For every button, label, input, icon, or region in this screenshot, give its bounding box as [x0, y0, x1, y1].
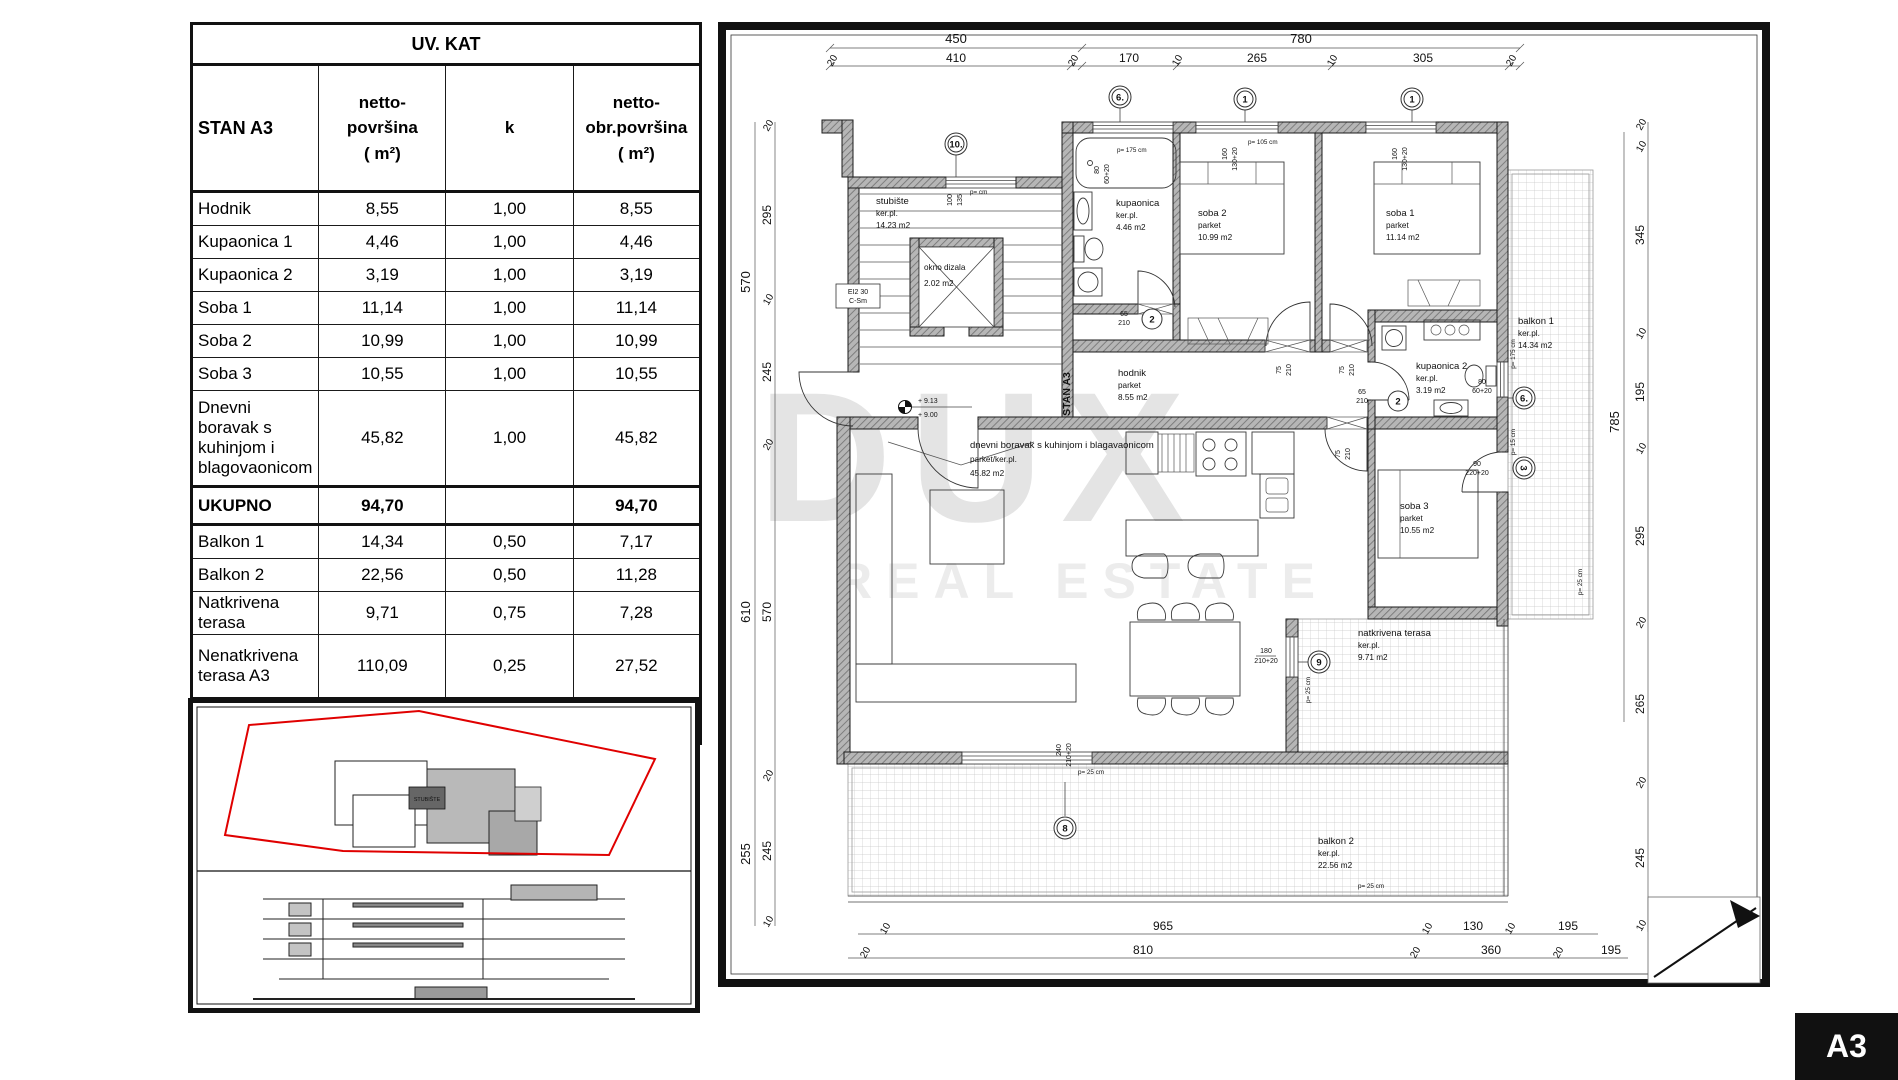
- svg-text:8: 8: [1062, 824, 1067, 835]
- svg-text:65: 65: [1120, 311, 1128, 318]
- table-row: Dnevni boravak s kuhinjom i blagovaonico…: [192, 391, 701, 487]
- svg-text:305: 305: [1413, 51, 1433, 65]
- svg-text:210: 210: [1345, 448, 1352, 460]
- svg-text:+ 9.13: + 9.13: [918, 398, 938, 405]
- table-row: Hodnik8,551,008,55: [192, 192, 701, 226]
- svg-text:295: 295: [1633, 526, 1647, 546]
- svg-text:6.: 6.: [1116, 93, 1124, 104]
- svg-text:265: 265: [1247, 51, 1267, 65]
- svg-text:p= 25 cm: p= 25 cm: [1577, 569, 1584, 595]
- table-row: Natkrivena terasa9,710,757,28: [192, 592, 701, 635]
- svg-text:100: 100: [947, 194, 954, 206]
- svg-text:610: 610: [738, 601, 753, 623]
- svg-text:10.99 m2: 10.99 m2: [1198, 233, 1233, 242]
- svg-text:360: 360: [1481, 943, 1501, 957]
- svg-text:20: 20: [761, 118, 776, 134]
- svg-text:75: 75: [1276, 366, 1283, 374]
- svg-text:785: 785: [1607, 411, 1622, 433]
- svg-text:295: 295: [760, 205, 774, 225]
- svg-text:80: 80: [1094, 166, 1101, 174]
- svg-text:2.02 m2: 2.02 m2: [924, 279, 954, 288]
- svg-text:265: 265: [1633, 694, 1647, 714]
- svg-text:balkon 1: balkon 1: [1518, 316, 1554, 327]
- svg-text:10: 10: [761, 914, 776, 930]
- table-row: Soba 210,991,0010,99: [192, 325, 701, 358]
- svg-text:245: 245: [1633, 848, 1647, 868]
- svg-text:parket: parket: [1198, 221, 1221, 230]
- fire-door-label: EI2 30 C-Sm: [836, 284, 880, 308]
- sofa: [856, 474, 1076, 702]
- svg-text:22.56 m2: 22.56 m2: [1318, 861, 1353, 870]
- svg-text:p= cm: p= cm: [970, 189, 987, 196]
- svg-text:220+20: 220+20: [1465, 470, 1489, 477]
- svg-text:10: 10: [1634, 139, 1649, 155]
- table-row: Soba 310,551,0010,55: [192, 358, 701, 391]
- svg-text:160: 160: [1392, 148, 1399, 160]
- stove: [1196, 432, 1246, 476]
- svg-text:p= 175 cm: p= 175 cm: [1510, 339, 1517, 369]
- coffee-table: [930, 490, 1004, 564]
- svg-text:20: 20: [761, 437, 776, 453]
- svg-text:balkon 2: balkon 2: [1318, 836, 1354, 847]
- svg-text:210: 210: [1356, 398, 1368, 405]
- table-row: Balkon 114,340,507,17: [192, 525, 701, 559]
- svg-text:10: 10: [1634, 918, 1649, 934]
- elevation-marker: + 9.13 + 9.00: [899, 398, 973, 419]
- svg-text:p= 25 cm: p= 25 cm: [1305, 677, 1312, 703]
- dining-table: [1130, 603, 1240, 715]
- svg-text:14.23 m2: 14.23 m2: [876, 221, 911, 230]
- svg-text:195: 195: [1601, 943, 1621, 957]
- stan-label: STAN A3: [1061, 372, 1073, 416]
- svg-text:ker.pl.: ker.pl.: [1358, 641, 1380, 650]
- table-row-subtotal: UKUPNO94,7094,70: [192, 487, 701, 525]
- site-stubiste-label: STUBIŠTE: [414, 796, 441, 803]
- svg-text:14.34 m2: 14.34 m2: [1518, 341, 1553, 350]
- svg-text:ker.pl.: ker.pl.: [1518, 329, 1540, 338]
- svg-text:410: 410: [946, 51, 966, 65]
- north-arrow: [1648, 897, 1760, 983]
- svg-text:810: 810: [1133, 943, 1153, 957]
- doors: [799, 271, 1502, 492]
- table-row: Kupaonica 23,191,003,19: [192, 259, 701, 292]
- svg-text:3.19 m2: 3.19 m2: [1416, 386, 1446, 395]
- svg-text:EI2 30: EI2 30: [848, 289, 868, 296]
- col-header-obr: netto- obr.površina ( m²): [573, 65, 700, 192]
- col-header-netto: netto- površina ( m²): [319, 65, 446, 192]
- svg-text:20: 20: [1634, 615, 1649, 631]
- svg-text:10: 10: [761, 292, 776, 308]
- table-row: Soba 111,141,0011,14: [192, 292, 701, 325]
- building-elevation: [253, 885, 635, 999]
- svg-text:+ 9.00: + 9.00: [918, 412, 938, 419]
- svg-text:20: 20: [1634, 117, 1649, 133]
- svg-text:parket: parket: [1386, 221, 1409, 230]
- svg-text:130+20: 130+20: [1402, 147, 1409, 171]
- balkon2-floor: [848, 764, 1508, 896]
- table-row: Kupaonica 14,461,004,46: [192, 226, 701, 259]
- site-plan-drawing: STUBIŠTE: [193, 703, 695, 1008]
- kitchen: [1126, 432, 1294, 578]
- svg-text:2: 2: [1149, 315, 1154, 326]
- col-header-apartment: STAN A3: [192, 65, 319, 192]
- bar-stool: [1132, 554, 1168, 578]
- svg-text:245: 245: [760, 841, 774, 861]
- svg-text:ker.pl.: ker.pl.: [1318, 849, 1340, 858]
- svg-text:130+20: 130+20: [1232, 147, 1239, 171]
- svg-text:965: 965: [1153, 919, 1173, 933]
- svg-text:3: 3: [1518, 465, 1529, 470]
- svg-text:80: 80: [1478, 379, 1486, 386]
- svg-text:65: 65: [1358, 389, 1366, 396]
- svg-text:570: 570: [760, 602, 774, 622]
- svg-text:p= 25 cm: p= 25 cm: [1358, 883, 1384, 890]
- area-table: UV. KAT STAN A3 netto- površina ( m²) k …: [190, 22, 702, 745]
- svg-text:kupaonica 2: kupaonica 2: [1416, 361, 1467, 372]
- svg-text:130: 130: [1463, 919, 1483, 933]
- svg-text:11.14 m2: 11.14 m2: [1386, 233, 1420, 242]
- svg-text:natkrivena terasa: natkrivena terasa: [1358, 628, 1432, 639]
- svg-text:180: 180: [1260, 648, 1272, 655]
- svg-text:1: 1: [1242, 95, 1248, 106]
- svg-text:210+20: 210+20: [1066, 743, 1073, 767]
- svg-text:75: 75: [1335, 450, 1342, 458]
- svg-text:1: 1: [1409, 95, 1415, 106]
- svg-text:ker.pl.: ker.pl.: [876, 209, 898, 218]
- svg-text:450: 450: [945, 31, 967, 46]
- svg-text:10.55 m2: 10.55 m2: [1400, 526, 1435, 535]
- svg-text:6.: 6.: [1520, 394, 1528, 405]
- svg-text:195: 195: [1633, 382, 1647, 402]
- svg-text:255: 255: [738, 843, 753, 865]
- svg-text:hodnik: hodnik: [1118, 368, 1146, 379]
- svg-text:780: 780: [1290, 31, 1312, 46]
- kitchen-island: [1126, 520, 1258, 556]
- svg-text:10.: 10.: [949, 140, 962, 151]
- site-plan-inset: STUBIŠTE: [188, 698, 700, 1013]
- svg-text:195: 195: [1558, 919, 1578, 933]
- svg-text:170: 170: [1119, 51, 1139, 65]
- building-footprint: STUBIŠTE: [335, 761, 541, 855]
- svg-text:ker.pl.: ker.pl.: [1416, 374, 1438, 383]
- svg-text:C-Sm: C-Sm: [849, 298, 867, 305]
- table-title: UV. KAT: [192, 24, 701, 65]
- svg-text:10: 10: [1634, 441, 1649, 457]
- svg-text:parket: parket: [1400, 514, 1423, 523]
- svg-text:135: 135: [957, 194, 964, 206]
- svg-text:p= 15 cm: p= 15 cm: [1510, 429, 1517, 455]
- svg-text:20: 20: [1634, 775, 1649, 791]
- svg-text:8.55 m2: 8.55 m2: [1118, 393, 1148, 402]
- table-row: Balkon 222,560,5011,28: [192, 559, 701, 592]
- svg-text:kupaonica: kupaonica: [1116, 198, 1160, 209]
- svg-text:45.82 m2: 45.82 m2: [970, 469, 1005, 478]
- svg-text:240: 240: [1056, 744, 1063, 756]
- svg-text:dnevni boravak s kuhinjom i bl: dnevni boravak s kuhinjom i blagavaonico…: [970, 440, 1154, 451]
- svg-text:2: 2: [1395, 397, 1400, 408]
- svg-text:160: 160: [1222, 148, 1229, 160]
- kitchen-sink: [1260, 474, 1294, 518]
- svg-text:stubište: stubište: [876, 196, 909, 207]
- svg-text:60+20: 60+20: [1472, 388, 1492, 395]
- svg-text:parket/ker.pl.: parket/ker.pl.: [970, 455, 1017, 464]
- svg-text:345: 345: [1633, 225, 1647, 245]
- svg-text:soba 3: soba 3: [1400, 501, 1429, 512]
- col-header-k: k: [446, 65, 573, 192]
- svg-text:parket: parket: [1118, 381, 1141, 390]
- svg-text:210: 210: [1286, 364, 1293, 376]
- svg-text:210+20: 210+20: [1254, 658, 1278, 665]
- svg-text:p= 105 cm: p= 105 cm: [1248, 139, 1278, 146]
- bar-stool: [1188, 554, 1224, 578]
- svg-text:ker.pl.: ker.pl.: [1116, 211, 1138, 220]
- floor-plan: stubište ker.pl. 14.23 m2 okno dizala 2.…: [718, 22, 1770, 987]
- svg-text:4.46 m2: 4.46 m2: [1116, 223, 1146, 232]
- svg-text:p= 25 cm: p= 25 cm: [1078, 769, 1104, 776]
- sheet-label: A3: [1795, 1013, 1898, 1080]
- bathtub: [1076, 138, 1176, 188]
- svg-text:60+20: 60+20: [1104, 164, 1111, 184]
- svg-text:9.71 m2: 9.71 m2: [1358, 653, 1388, 662]
- svg-text:210: 210: [1118, 320, 1130, 327]
- svg-text:245: 245: [760, 362, 774, 382]
- svg-text:soba 2: soba 2: [1198, 208, 1227, 219]
- drawing-sheet: UV. KAT STAN A3 netto- površina ( m²) k …: [0, 0, 1898, 1080]
- toilet: [1074, 236, 1084, 262]
- svg-text:p= 175 cm: p= 175 cm: [1117, 147, 1147, 154]
- svg-text:soba 1: soba 1: [1386, 208, 1415, 219]
- svg-text:90: 90: [1473, 461, 1481, 468]
- svg-text:9: 9: [1316, 658, 1321, 669]
- svg-text:75: 75: [1339, 366, 1346, 374]
- svg-text:10: 10: [1634, 326, 1649, 342]
- svg-text:570: 570: [738, 271, 753, 293]
- table-row: Nenatkrivena terasa A3110,090,2527,52: [192, 635, 701, 699]
- svg-text:20: 20: [761, 768, 776, 784]
- svg-text:okno dizala: okno dizala: [924, 263, 966, 272]
- svg-text:210: 210: [1349, 364, 1356, 376]
